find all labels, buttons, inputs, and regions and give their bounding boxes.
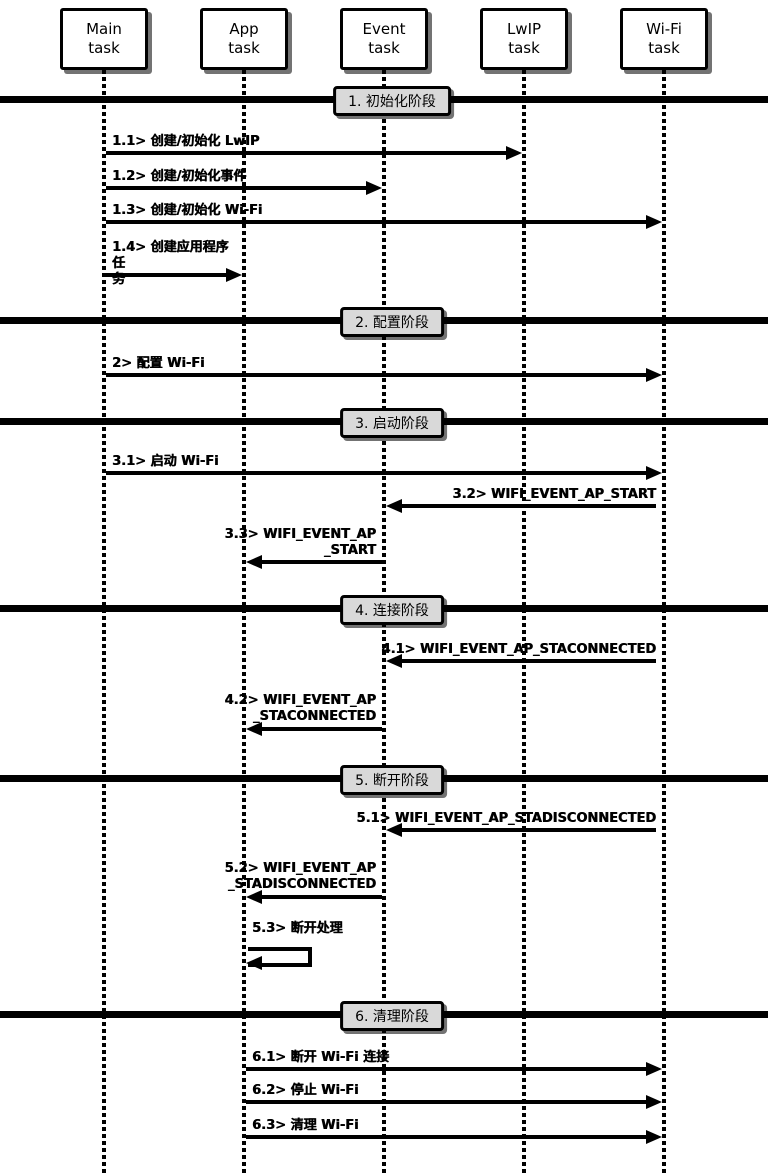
message-line-3-3 bbox=[259, 560, 382, 564]
phase-label-connect: 4. 连接阶段 bbox=[340, 595, 444, 625]
actor-box-wifi-task: Wi-Fi task bbox=[620, 8, 708, 70]
actor-box-main-task: Main task bbox=[60, 8, 148, 70]
message-line-3-2 bbox=[399, 504, 656, 508]
message-label-1-2: 1.2> 创建/初始化事件 bbox=[112, 169, 246, 185]
arrow-head-right bbox=[646, 215, 662, 229]
arrow-head-left bbox=[386, 499, 402, 513]
message-label-3-1: 3.1> 启动 Wi-Fi bbox=[112, 454, 219, 470]
arrow-head-right bbox=[366, 181, 382, 195]
message-label-3-2: 3.2> WIFI_EVENT_AP_START bbox=[452, 487, 656, 503]
message-line-6-1 bbox=[246, 1067, 649, 1071]
message-line-5-1 bbox=[399, 828, 656, 832]
sequence-diagram: Main task App task Event task LwIP task … bbox=[0, 0, 768, 1176]
arrow-head-right bbox=[646, 1130, 662, 1144]
message-line-4-2 bbox=[259, 727, 382, 731]
message-line-6-2 bbox=[246, 1100, 649, 1104]
arrow-head-right bbox=[646, 1095, 662, 1109]
actor-box-app-task: App task bbox=[200, 8, 288, 70]
message-label-6-2: 6.2> 停止 Wi-Fi bbox=[252, 1083, 359, 1099]
message-line-1-3 bbox=[106, 220, 649, 224]
message-label-2: 2> 配置 Wi-Fi bbox=[112, 356, 205, 372]
message-label-6-1: 6.1> 断开 Wi-Fi 连接 bbox=[252, 1050, 389, 1066]
message-label-4-1: 4.1> WIFI_EVENT_AP_STACONNECTED bbox=[381, 642, 656, 658]
message-line-2 bbox=[106, 373, 649, 377]
actor-box-event-task: Event task bbox=[340, 8, 428, 70]
message-label-3-3: 3.3> WIFI_EVENT_AP _START bbox=[225, 527, 377, 559]
message-label-4-2: 4.2> WIFI_EVENT_AP _STACONNECTED bbox=[225, 693, 377, 725]
arrow-head-right bbox=[646, 466, 662, 480]
message-line-5-2 bbox=[259, 895, 382, 899]
phase-label-config: 2. 配置阶段 bbox=[340, 307, 444, 337]
message-label-6-3: 6.3> 清理 Wi-Fi bbox=[252, 1118, 359, 1134]
message-line-1-1 bbox=[106, 151, 509, 155]
message-label-1-4: 1.4> 创建应用程序任 务 bbox=[112, 240, 238, 288]
phase-label-disconnect: 5. 断开阶段 bbox=[340, 765, 444, 795]
message-label-5-1: 5.1> WIFI_EVENT_AP_STADISCONNECTED bbox=[356, 811, 656, 827]
message-line-4-1 bbox=[399, 659, 656, 663]
message-line-1-2 bbox=[106, 186, 369, 190]
arrow-head-right bbox=[506, 146, 522, 160]
arrow-head-left bbox=[246, 956, 262, 970]
arrow-head-right bbox=[646, 1062, 662, 1076]
phase-label-init: 1. 初始化阶段 bbox=[333, 86, 451, 116]
message-label-1-3: 1.3> 创建/初始化 Wi-Fi bbox=[112, 203, 262, 219]
phase-label-cleanup: 6. 清理阶段 bbox=[340, 1001, 444, 1031]
message-label-5-3: 5.3> 断开处理 bbox=[252, 921, 342, 937]
actor-box-lwip-task: LwIP task bbox=[480, 8, 568, 70]
message-line-3-1 bbox=[106, 471, 649, 475]
arrow-head-right bbox=[646, 368, 662, 382]
message-line-6-3 bbox=[246, 1135, 649, 1139]
phase-label-start: 3. 启动阶段 bbox=[340, 408, 444, 438]
message-label-1-1: 1.1> 创建/初始化 LwIP bbox=[112, 134, 259, 150]
message-label-5-2: 5.2> WIFI_EVENT_AP _STADISCONNECTED bbox=[225, 861, 377, 893]
